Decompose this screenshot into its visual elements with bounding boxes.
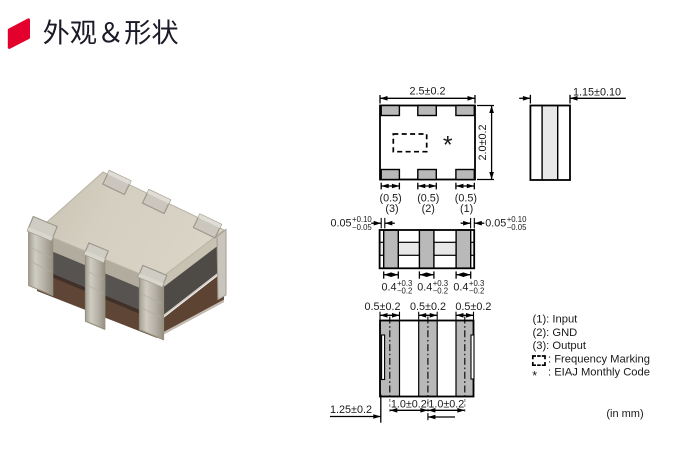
svg-text:1.0±0.2: 1.0±0.2 <box>428 398 464 410</box>
svg-text:0.05: 0.05 <box>331 218 352 230</box>
svg-text:2.0±0.2: 2.0±0.2 <box>477 125 489 161</box>
svg-text:(in mm): (in mm) <box>606 408 643 420</box>
svg-text:0.5±0.2: 0.5±0.2 <box>455 301 491 313</box>
svg-text:0.4: 0.4 <box>453 282 468 294</box>
svg-text:1.0±0.2: 1.0±0.2 <box>391 398 427 410</box>
svg-text:0.5±0.2: 0.5±0.2 <box>410 301 446 313</box>
svg-text:0.4: 0.4 <box>417 282 432 294</box>
svg-text:−0.2: −0.2 <box>433 287 448 296</box>
svg-text:−0.05: −0.05 <box>507 223 527 232</box>
svg-text:(1): (1) <box>460 203 473 215</box>
svg-text:: EIAJ Monthly Code: : EIAJ Monthly Code <box>548 367 650 379</box>
svg-text:−0.2: −0.2 <box>469 287 484 296</box>
svg-text:*: * <box>532 369 537 383</box>
svg-text:(3): Output: (3): Output <box>533 340 587 352</box>
svg-text:−0.2: −0.2 <box>397 287 412 296</box>
svg-text:: Frequency Marking: : Frequency Marking <box>548 353 650 365</box>
svg-text:(2): GND: (2): GND <box>533 327 578 339</box>
svg-text:−0.05: −0.05 <box>352 223 372 232</box>
svg-text:(1): Input: (1): Input <box>533 314 579 326</box>
svg-text:1.25±0.2: 1.25±0.2 <box>330 404 372 416</box>
svg-text:(2): (2) <box>422 203 435 215</box>
svg-text:2.5±0.2: 2.5±0.2 <box>410 86 446 98</box>
svg-text:(3): (3) <box>385 203 398 215</box>
svg-text:*: * <box>443 132 453 160</box>
svg-text:0.5±0.2: 0.5±0.2 <box>365 301 401 313</box>
svg-text:0.05: 0.05 <box>485 218 506 230</box>
svg-text:1.15±0.10: 1.15±0.10 <box>573 87 621 99</box>
svg-text:0.4: 0.4 <box>382 282 397 294</box>
